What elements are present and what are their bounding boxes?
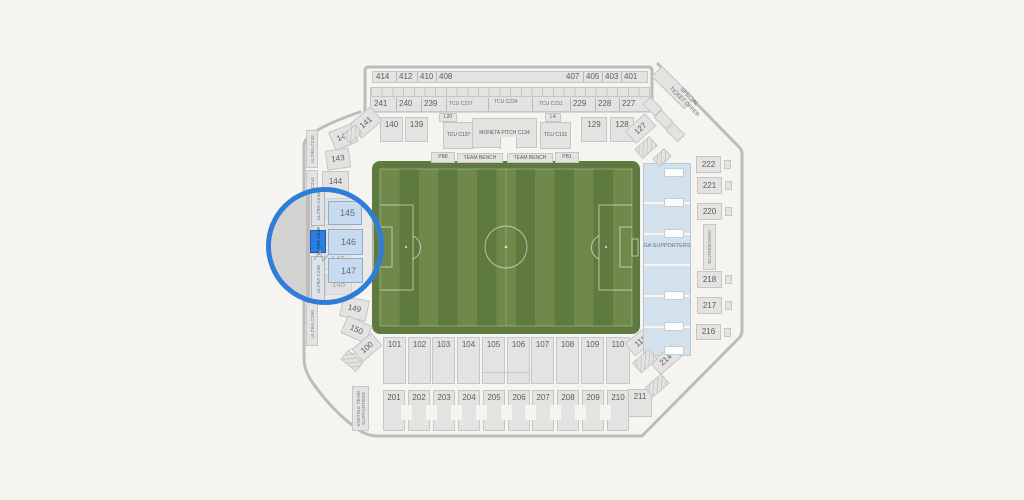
section-label: 139	[410, 121, 423, 129]
lens-field-sliver	[374, 192, 379, 300]
visiting-supporters[interactable]: VISITING TEAM SUPPORTERS	[352, 386, 369, 431]
section-239[interactable]: 239	[424, 100, 437, 108]
section-241[interactable]: 241	[374, 100, 387, 108]
vomitory	[664, 198, 684, 207]
section-240[interactable]: 240	[399, 100, 412, 108]
team-bench-west: TEAM BENCH	[457, 153, 503, 163]
section-ultra-c242[interactable]: ULTRA C242	[306, 130, 318, 168]
section-103[interactable]: 103	[432, 337, 455, 384]
aisle-slot	[426, 405, 437, 420]
lens-section-146[interactable]: 146	[328, 229, 363, 255]
vomitory	[664, 346, 684, 355]
outer-tab	[724, 328, 731, 337]
section-109[interactable]: 109	[581, 337, 604, 384]
outer-tab	[724, 160, 731, 169]
section-label: L4	[550, 115, 556, 120]
section-label: ULTRA C248	[316, 265, 321, 293]
section-label: 127	[633, 121, 648, 136]
divider	[532, 98, 533, 111]
section-408[interactable]: 408	[439, 73, 452, 81]
section-label: TCU C137	[447, 133, 471, 138]
section-label: 205	[487, 394, 500, 402]
section-label: 220	[703, 208, 716, 216]
section-label: 104	[462, 341, 475, 349]
section-label: MONETA PITCH C134	[479, 131, 529, 136]
outer-tab	[725, 181, 732, 190]
section-label: 218	[703, 276, 716, 284]
section-221[interactable]: 221	[697, 177, 722, 194]
section-label: 109	[586, 341, 599, 349]
section-102[interactable]: 102	[408, 337, 431, 384]
section-label: 209	[586, 394, 599, 402]
section-139[interactable]: 139	[405, 117, 428, 142]
outer-tab	[725, 301, 732, 310]
section-407[interactable]: 407	[566, 73, 579, 81]
section-label: 149	[347, 303, 362, 314]
section-label: PB1	[562, 155, 571, 160]
section-pb8[interactable]: PB8	[431, 152, 455, 163]
section-label: 110	[612, 341, 625, 349]
offer-box[interactable]	[666, 123, 686, 143]
divider	[421, 98, 422, 111]
section-label: 211	[634, 393, 647, 401]
section-ultra-c250[interactable]: ULTRA C250	[306, 302, 318, 346]
magnifier-lens[interactable]: ULTRA C244 ULTRA C246 ULTRA C248 145 146…	[266, 187, 384, 305]
section-104[interactable]: 104	[457, 337, 480, 384]
divider	[446, 98, 447, 111]
ga-supporters-label: GA SUPPORTERS	[643, 244, 691, 250]
section-227[interactable]: 227	[622, 100, 635, 108]
field-stripes	[380, 169, 632, 326]
section-label: 201	[387, 394, 400, 402]
section-229[interactable]: 229	[573, 100, 586, 108]
section-label: 105	[487, 341, 500, 349]
outer-tab	[725, 275, 732, 284]
section-401[interactable]: 401	[624, 73, 637, 81]
aisle-slot	[476, 405, 487, 420]
suite-boxes-strip	[371, 88, 649, 97]
section-tcu-c234[interactable]: TCU C234	[494, 100, 518, 105]
divider	[396, 72, 397, 82]
section-129[interactable]: 129	[581, 117, 607, 142]
section-label: ULTRA C242	[310, 135, 315, 163]
lens-outside-area	[271, 192, 307, 300]
bench-label: TEAM BENCH	[514, 156, 547, 161]
section-label: 145	[340, 208, 355, 218]
offer-line1: SPECIAL	[663, 72, 713, 122]
section-143[interactable]: 143	[325, 147, 352, 170]
section-tcu-c237[interactable]: TCU C237	[449, 102, 473, 107]
team-bench-east: TEAM BENCH	[507, 153, 553, 163]
section-label: 210	[611, 394, 624, 402]
divider	[396, 98, 397, 111]
scoreboard-label: SCOREBOARD	[707, 230, 712, 264]
magnifier-content: ULTRA C244 ULTRA C246 ULTRA C248 145 146…	[271, 192, 379, 300]
aisle-slot	[550, 405, 561, 420]
section-l20[interactable]: L20	[439, 113, 457, 122]
lens-section-145[interactable]: 145	[328, 201, 362, 225]
section-label: 202	[412, 394, 425, 402]
section-108[interactable]: 108	[556, 337, 579, 384]
vomitory	[664, 291, 684, 300]
section-l4[interactable]: L4	[545, 113, 561, 122]
section-140[interactable]: 140	[380, 117, 403, 142]
section-label: 100	[359, 340, 374, 355]
lens-strip-above: ULTRA C244	[311, 192, 325, 226]
section-label: 107	[536, 341, 549, 349]
section-label: 106	[512, 341, 525, 349]
section-228[interactable]: 228	[598, 100, 611, 108]
vomitory	[664, 322, 684, 331]
section-label: 203	[437, 394, 450, 402]
section-label: 101	[388, 341, 401, 349]
divider	[602, 72, 603, 82]
scoreboard: SCOREBOARD	[703, 224, 716, 270]
section-label: 221	[703, 182, 716, 190]
section-414[interactable]: 414	[376, 73, 389, 81]
section-label: VISITING TEAM	[356, 391, 361, 427]
ga-divider	[644, 264, 690, 266]
section-label: 206	[512, 394, 525, 402]
divider	[619, 98, 620, 111]
aisle-slot	[525, 405, 536, 420]
aisle-slot	[451, 405, 462, 420]
section-412[interactable]: 412	[399, 73, 412, 81]
section-label: 108	[561, 341, 574, 349]
seatmap-page: { "colors": { "bg": "#f5f4f1", "secFill"…	[0, 0, 1024, 500]
section-pb1[interactable]: PB1	[555, 152, 579, 163]
section-tcu-c137[interactable]: TCU C137	[443, 122, 474, 149]
lens-section-147[interactable]: 147	[328, 258, 363, 283]
section-403[interactable]: 403	[605, 73, 618, 81]
vomitory	[664, 168, 684, 177]
section-tcu-c131[interactable]: TCU C131	[540, 122, 571, 149]
moneta-notch	[500, 137, 517, 149]
divider	[621, 72, 622, 82]
section-105[interactable]: 105	[482, 337, 505, 384]
vomitory	[664, 229, 684, 238]
aisle-slot	[401, 405, 412, 420]
section-101[interactable]: 101	[383, 337, 406, 384]
section-label: 207	[536, 394, 549, 402]
section-label: 102	[413, 341, 426, 349]
section-label: 143	[331, 154, 345, 164]
section-label: SUPPORTERS	[361, 392, 366, 425]
section-label: 129	[587, 121, 600, 129]
divider	[417, 72, 418, 82]
section-220[interactable]: 220	[697, 203, 722, 220]
section-label: 216	[702, 328, 715, 336]
aisle-slot	[501, 405, 512, 420]
section-107[interactable]: 107	[531, 337, 554, 384]
section-label: 140	[385, 121, 398, 129]
section-label: 217	[703, 302, 716, 310]
section-410[interactable]: 410	[420, 73, 433, 81]
section-222[interactable]: 222	[696, 156, 721, 173]
section-label: PB8	[438, 155, 447, 160]
section-label: 144	[329, 178, 342, 186]
section-label: ULTRA C250	[310, 310, 315, 338]
section-label: 147	[341, 266, 356, 276]
section-label: ULTRA C244	[316, 192, 321, 220]
section-label: 204	[462, 394, 475, 402]
row-divider	[483, 372, 529, 373]
section-label: 222	[702, 161, 715, 169]
section-405[interactable]: 405	[586, 73, 599, 81]
section-label: 150	[349, 323, 364, 336]
section-217[interactable]: 217	[697, 297, 722, 314]
divider	[570, 98, 571, 111]
section-218[interactable]: 218	[697, 271, 722, 288]
divider	[583, 72, 584, 82]
section-tcu-c231[interactable]: TCU C231	[539, 102, 563, 107]
aisle-slot	[575, 405, 586, 420]
bench-label: TEAM BENCH	[464, 156, 497, 161]
section-label: 103	[437, 341, 450, 349]
section-216[interactable]: 216	[696, 324, 721, 340]
divider	[595, 98, 596, 111]
outer-tab	[725, 207, 732, 216]
section-label: TCU C131	[544, 133, 568, 138]
divider	[436, 72, 437, 82]
section-106[interactable]: 106	[507, 337, 530, 384]
section-label: 146	[341, 237, 356, 247]
section-label: 141	[358, 115, 373, 130]
section-label: L20	[444, 115, 452, 120]
section-label: 208	[561, 394, 574, 402]
divider	[488, 98, 489, 111]
aisle-slot	[600, 405, 611, 420]
